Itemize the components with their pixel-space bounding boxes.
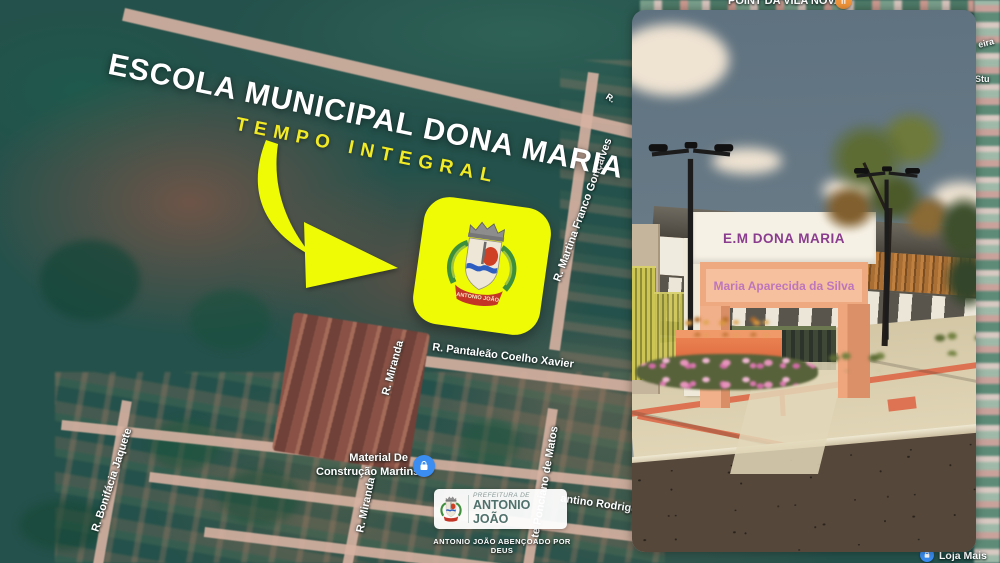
fork-knife-glyph	[839, 0, 848, 5]
street-lamp-icon	[854, 164, 920, 342]
poi-label-point-vila-nova[interactable]: POINT DA VILA NOVA	[728, 0, 842, 7]
golden-flowers	[682, 314, 776, 336]
prefeitura-logo: PREFEITURA DE ANTONIO JOÃO	[434, 489, 567, 529]
logo-text-block: PREFEITURA DE ANTONIO JOÃO	[473, 492, 563, 525]
street-label-edge-bottom: Stu	[975, 74, 990, 84]
green-shrubs	[824, 348, 898, 372]
logo-name: ANTONIO JOÃO	[473, 499, 563, 525]
municipal-coat-of-arms-small	[438, 493, 464, 525]
poi-label-material[interactable]: Material De Construção Martins	[316, 452, 408, 480]
school-location-badge: ANTONIO JOÃO	[410, 194, 555, 339]
pink-flower-bed	[636, 354, 818, 390]
shopping-bag-glyph	[418, 460, 430, 472]
arrow-pointer	[246, 140, 416, 290]
promo-image: R. Pantaleão Coelho Xavier R. Martina Fr…	[0, 0, 1000, 563]
tree-cluster	[190, 290, 270, 350]
shopping-bag-glyph	[923, 551, 931, 559]
municipal-coat-of-arms: ANTONIO JOÃO	[433, 210, 532, 319]
city-motto: ANTONIO JOÃO ABENÇOADO POR DEUS	[424, 537, 580, 555]
render-panel: E.M DONA MARIA Maria Aparecida da Silva	[632, 10, 976, 552]
poi-label-line2: Construção Martins	[316, 466, 419, 478]
bush	[930, 328, 976, 356]
warehouse-roofs	[272, 312, 430, 472]
store-icon[interactable]	[413, 455, 435, 477]
poi-label-line1: Material De	[349, 452, 408, 464]
cloud	[632, 24, 729, 96]
tree-cluster	[460, 420, 520, 465]
school-subtitle-sign: Maria Aparecida da Silva	[714, 279, 855, 293]
map-edge-right	[974, 0, 1000, 563]
tree-cluster	[40, 240, 140, 320]
tree-canopy-right	[934, 178, 976, 323]
logo-divider	[468, 495, 469, 523]
